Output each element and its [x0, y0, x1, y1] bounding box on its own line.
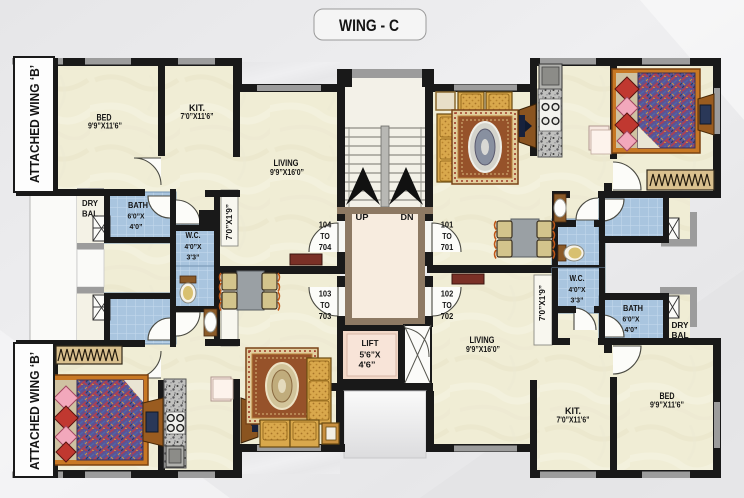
svg-text:9'9”X11'6”: 9'9”X11'6” [88, 121, 122, 131]
svg-text:4'0”X: 4'0”X [569, 285, 586, 294]
svg-text:103: 103 [319, 290, 332, 299]
svg-text:4'0”: 4'0” [130, 222, 143, 231]
svg-text:7'0”X1'9”: 7'0”X1'9” [225, 204, 234, 240]
svg-text:3'3”: 3'3” [571, 296, 584, 305]
svg-text:4'0”: 4'0” [625, 325, 638, 334]
svg-text:5'6”X: 5'6”X [360, 351, 382, 360]
svg-text:TO: TO [442, 301, 452, 310]
svg-text:W.C.: W.C. [570, 274, 585, 283]
svg-text:102: 102 [441, 290, 454, 299]
svg-text:ATTACHED WING ‘B’: ATTACHED WING ‘B’ [28, 352, 42, 470]
svg-text:ATTACHED WING ‘B’: ATTACHED WING ‘B’ [28, 65, 42, 183]
svg-text:DN: DN [401, 212, 414, 222]
svg-text:7'0”X1'9”: 7'0”X1'9” [538, 285, 547, 321]
svg-text:9'9”X16'0”: 9'9”X16'0” [466, 344, 500, 354]
svg-text:101: 101 [441, 221, 454, 230]
svg-text:BAL: BAL [672, 331, 689, 340]
svg-text:BATH: BATH [128, 201, 148, 210]
svg-text:BATH: BATH [623, 304, 643, 313]
svg-text:4'6”: 4'6” [359, 361, 376, 370]
svg-text:DRY: DRY [672, 321, 690, 330]
svg-text:9'9”X16'0”: 9'9”X16'0” [270, 167, 304, 177]
svg-text:7'0”X11'6”: 7'0”X11'6” [557, 415, 590, 425]
svg-text:104: 104 [319, 221, 332, 230]
svg-text:W.C.: W.C. [186, 231, 201, 240]
svg-text:DRY: DRY [82, 199, 99, 208]
svg-text:703: 703 [319, 312, 332, 321]
svg-text:3'3”: 3'3” [187, 253, 200, 262]
svg-text:6'0”X: 6'0”X [128, 212, 145, 221]
svg-text:9'9”X11'6”: 9'9”X11'6” [650, 400, 684, 410]
svg-text:TO: TO [320, 301, 330, 310]
svg-text:LIFT: LIFT [362, 338, 380, 348]
svg-text:UP: UP [356, 212, 369, 222]
svg-text:7'0”X11'6”: 7'0”X11'6” [181, 111, 214, 121]
svg-text:TO: TO [442, 232, 452, 241]
svg-text:701: 701 [441, 243, 454, 252]
svg-text:WING - C: WING - C [339, 17, 399, 35]
svg-text:702: 702 [441, 312, 454, 321]
svg-text:4'0”X: 4'0”X [185, 242, 202, 251]
svg-text:TO: TO [320, 232, 330, 241]
svg-text:BAL: BAL [82, 210, 98, 219]
svg-text:6'0”X: 6'0”X [623, 315, 640, 324]
svg-text:704: 704 [319, 243, 332, 252]
